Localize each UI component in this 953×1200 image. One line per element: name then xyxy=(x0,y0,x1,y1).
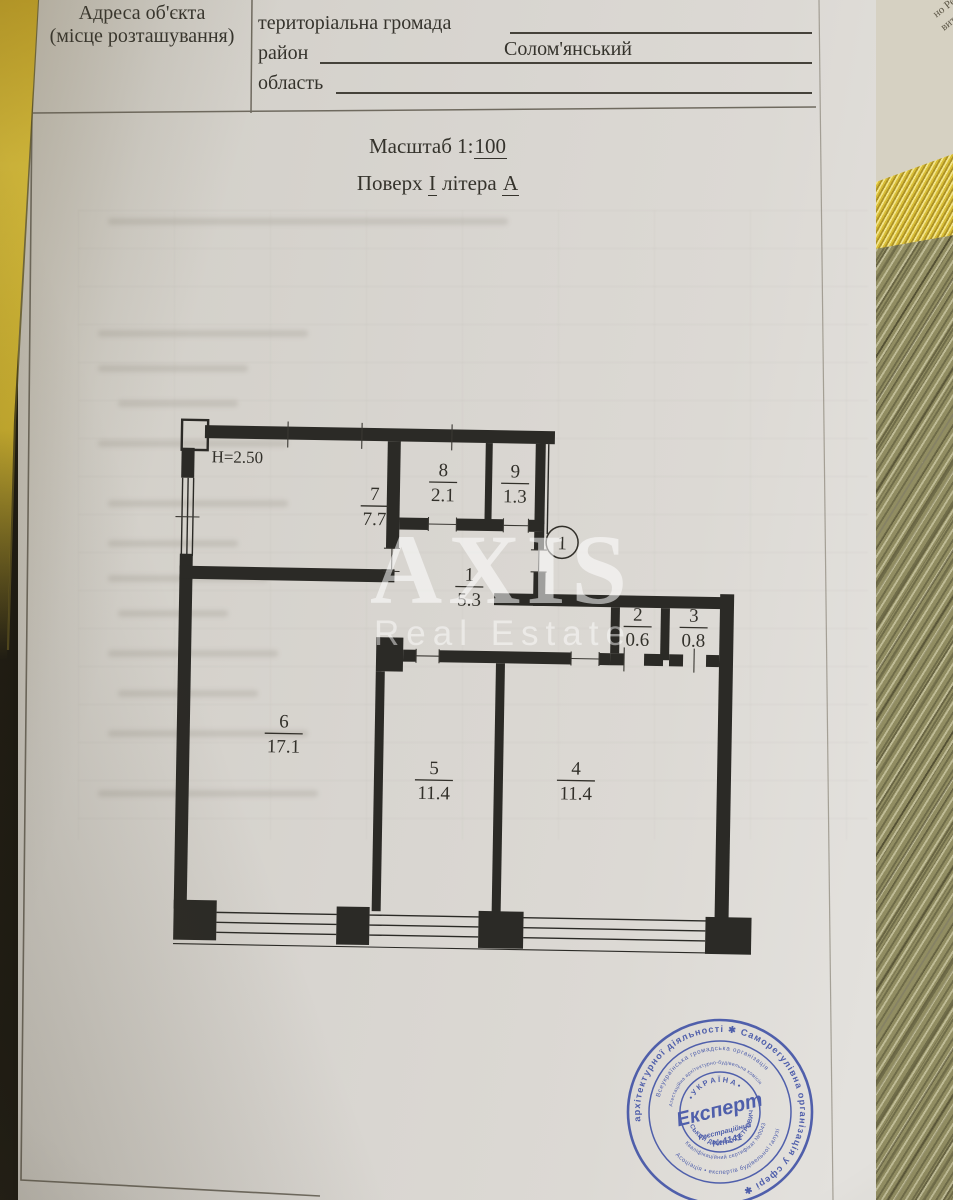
ceiling-height-label: Н=2.50 xyxy=(211,447,263,467)
windows xyxy=(173,438,760,954)
room-label-4: 4 11.4 xyxy=(557,758,596,805)
svg-text:7: 7 xyxy=(370,484,380,505)
room-label-6: 6 17.1 xyxy=(264,711,303,758)
svg-text:5.3: 5.3 xyxy=(457,590,481,611)
room-label-9: 9 1.3 xyxy=(501,461,530,507)
photo-of-document: Адреса об'єкта (місце розташування) тери… xyxy=(0,0,953,1200)
svg-text:8: 8 xyxy=(438,460,448,481)
svg-text:1: 1 xyxy=(557,533,567,554)
walls xyxy=(173,420,760,955)
room-label-1: 1 5.3 xyxy=(455,564,484,610)
svg-text:7.7: 7.7 xyxy=(362,509,386,530)
room-label-2: 2 0.6 xyxy=(623,604,652,650)
svg-text:1: 1 xyxy=(465,565,475,586)
svg-text:3: 3 xyxy=(689,606,699,627)
svg-text:17.1: 17.1 xyxy=(267,736,301,758)
svg-text:6: 6 xyxy=(279,711,289,732)
svg-text:9: 9 xyxy=(510,461,520,482)
background-documents: Свідоцтва про 05 грудня 20 но Реєстрацій… xyxy=(876,0,953,1200)
room-label-5: 5 11.4 xyxy=(415,758,454,805)
room-label-3: 3 0.8 xyxy=(679,605,708,651)
svg-text:5: 5 xyxy=(429,758,439,779)
svg-text:2.1: 2.1 xyxy=(431,485,455,506)
expert-stamp: архітектурної діяльності ✱ Саморегулівна… xyxy=(598,1008,848,1200)
svg-text:11.4: 11.4 xyxy=(417,783,450,805)
room-label-7: 7 7.7 xyxy=(360,484,389,530)
svg-text:0.8: 0.8 xyxy=(681,630,705,651)
svg-text:11.4: 11.4 xyxy=(559,783,592,805)
svg-text:0.6: 0.6 xyxy=(625,629,649,650)
svg-text:4: 4 xyxy=(571,759,581,780)
entrance-mark: 1 xyxy=(546,526,579,559)
svg-text:1.3: 1.3 xyxy=(503,486,527,507)
room-label-8: 8 2.1 xyxy=(429,460,458,506)
olive-textured-cover xyxy=(876,235,953,1200)
svg-text:2: 2 xyxy=(633,605,643,626)
